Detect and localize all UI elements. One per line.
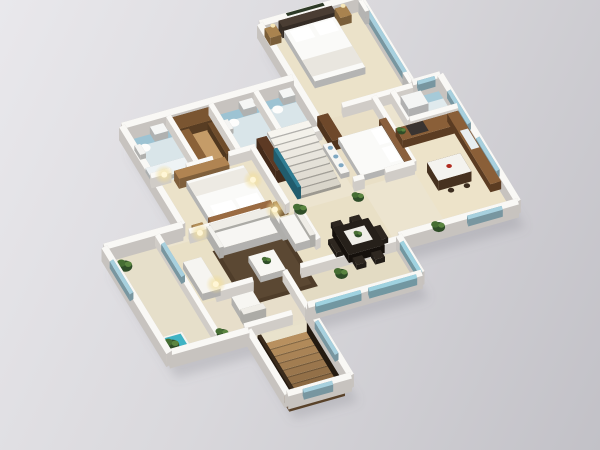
toilet-bath-3 xyxy=(272,106,283,114)
floor-lamp-foyer xyxy=(206,274,226,294)
floorplan-render xyxy=(0,0,600,450)
wall-bedroom-b-s-1 xyxy=(353,174,365,192)
lamp-a-1 xyxy=(270,24,275,28)
bench-pillow-3 xyxy=(339,163,344,167)
stool-1 xyxy=(448,188,454,193)
bench-pillow-2 xyxy=(333,155,338,159)
lamp-a-2 xyxy=(341,4,346,8)
bench-pillow-1 xyxy=(328,146,333,150)
stool-2 xyxy=(464,183,470,188)
floorplan-stage xyxy=(0,0,600,450)
floor-lamp-living-2 xyxy=(265,199,285,219)
red-bowl-island xyxy=(446,164,452,168)
floor-lamp-master-1 xyxy=(154,165,174,185)
floor-lamp-living-1 xyxy=(190,223,210,243)
